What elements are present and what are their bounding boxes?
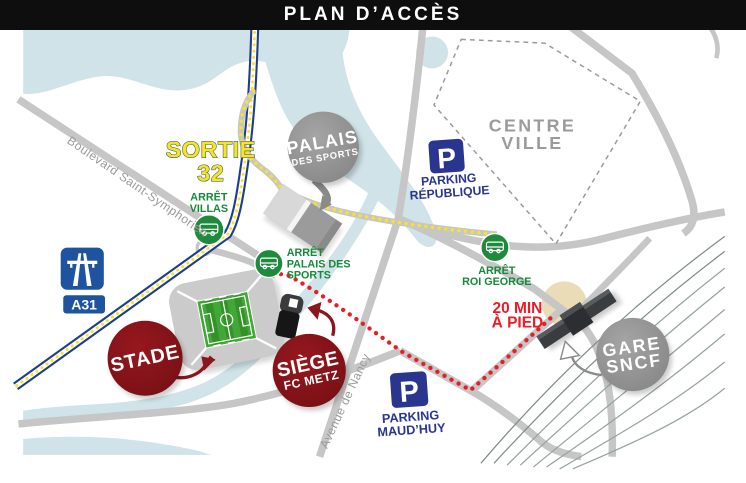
walk-line2: À PIED [492, 314, 544, 331]
stade-bubble: STADE [108, 321, 186, 400]
page-title: PLAN D’ACCÈS [284, 4, 463, 26]
stop-villas-line2: VILLAS [190, 203, 228, 215]
map-canvas: PALAIS DES SPORTS STADE SIÈGE FC METZ GA… [0, 30, 746, 483]
centre-ville-label: CENTRE VILLE [489, 115, 576, 153]
stop-villas-line1: ARRÊT [190, 191, 228, 204]
stop-palais-line1: ARRÊT [287, 246, 325, 259]
stadium-pitch [197, 292, 256, 348]
centre-ville-line2: VILLE [501, 133, 563, 153]
stop-palais-line2: PALAIS DES [287, 258, 351, 270]
road-centre-ville-east [570, 30, 694, 234]
sortie-line2: 32 [197, 160, 224, 186]
parking-republique: P PARKING RÉPUBLIQUE [406, 137, 490, 203]
parking-republique-p: P [436, 142, 457, 174]
access-plan-map: PLAN D’ACCÈS [0, 0, 746, 483]
roads [18, 30, 724, 457]
stop-roi-george-line2: ROI GEORGE [462, 276, 531, 288]
road-corner-curve [711, 30, 718, 58]
parking-maudhuy: P PARKING MAUD’HUY [373, 370, 446, 440]
siege-arrow [307, 302, 333, 336]
a31-badge: A31 [71, 296, 97, 312]
title-bar: PLAN D’ACCÈS [0, 0, 746, 30]
sortie-line1: SORTIE [166, 137, 256, 163]
road-boulevard-saint-symphorien [18, 99, 274, 266]
a31-motorway-sign: A31 [61, 248, 106, 315]
stop-palais-line3: SPORTS [287, 270, 331, 282]
stop-roi-george-line1: ARRÊT [478, 264, 516, 277]
walk-time-label: 20 MIN À PIED [492, 300, 544, 331]
parking-maudhuy-p: P [399, 376, 421, 409]
